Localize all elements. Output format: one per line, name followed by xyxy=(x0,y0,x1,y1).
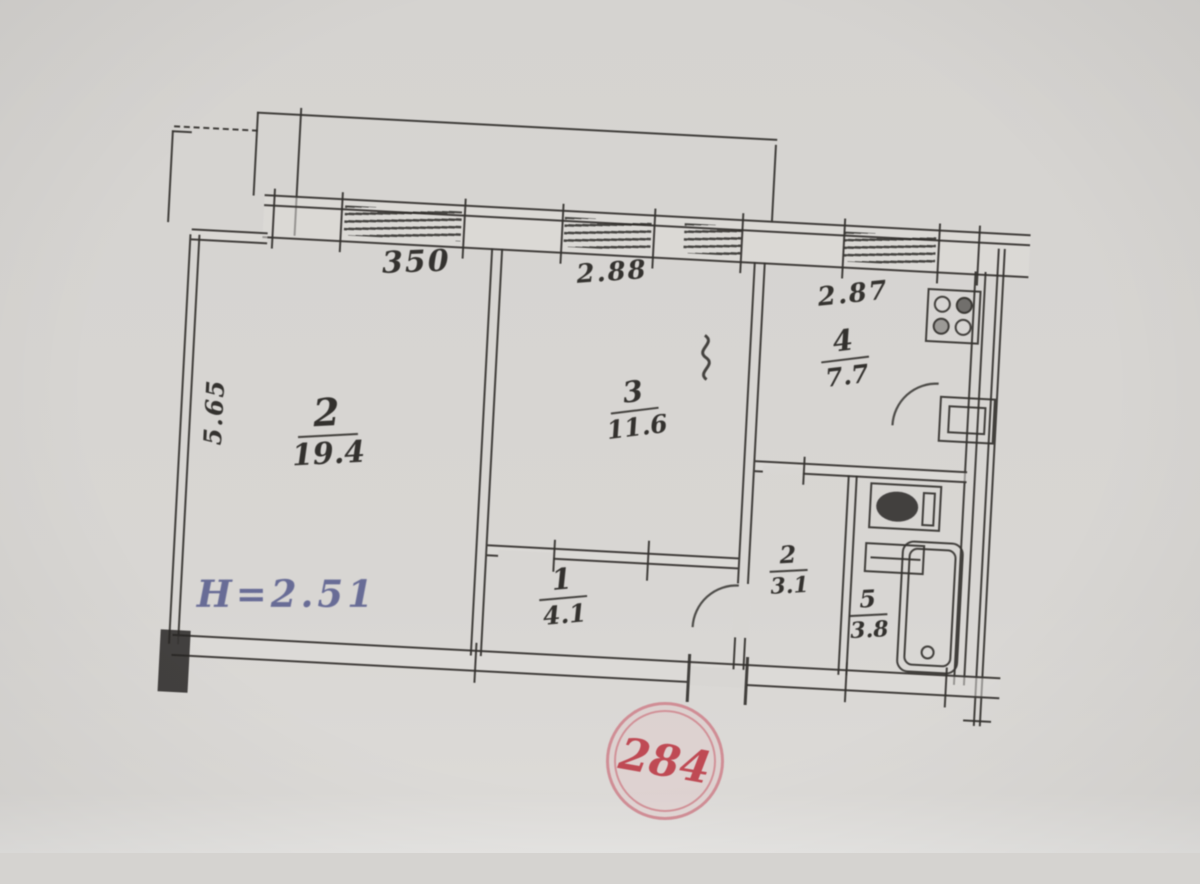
room-area: 7.7 xyxy=(822,361,873,392)
height-note: H=2.51 xyxy=(197,572,377,616)
room-label-bathroom: 5 3.8 xyxy=(848,586,889,642)
room-number: 2 xyxy=(289,392,364,434)
room-label-corridor: 2 3.1 xyxy=(768,542,809,598)
floor-plan-drawing: 2 19.4 3 11.6 4 7.7 1 4.1 2 3.1 5 3.8 35… xyxy=(0,0,1200,884)
room-area: 11.6 xyxy=(605,411,668,443)
door-swing-arc-icon xyxy=(892,381,938,427)
vent-squiggle-icon xyxy=(701,335,710,379)
room-number: 2 xyxy=(768,542,807,568)
room-number: 3 xyxy=(601,374,665,410)
dimension-room2-width: 350 xyxy=(381,243,451,280)
room-number: 4 xyxy=(817,324,868,359)
door-arcs-layer xyxy=(0,0,1200,884)
door-swing-arc-icon xyxy=(693,583,739,629)
room-number: 5 xyxy=(848,586,887,612)
dimension-room3-width: 2.88 xyxy=(575,255,648,290)
room-label-living: 2 19.4 xyxy=(289,392,366,472)
room-label-bedroom: 3 11.6 xyxy=(601,374,669,443)
room-area: 3.1 xyxy=(770,574,809,598)
room-area: 4.1 xyxy=(540,600,590,629)
room-area: 19.4 xyxy=(291,438,366,472)
dimension-left-depth: 5.65 xyxy=(198,378,230,446)
room-label-kitchen: 4 7.7 xyxy=(817,324,872,392)
stamp-number: 284 xyxy=(600,696,730,826)
room-number: 1 xyxy=(536,563,586,596)
room-label-hallway: 1 4.1 xyxy=(536,563,589,629)
room-area: 3.8 xyxy=(850,618,889,642)
inventory-stamp: 284 xyxy=(606,702,724,820)
